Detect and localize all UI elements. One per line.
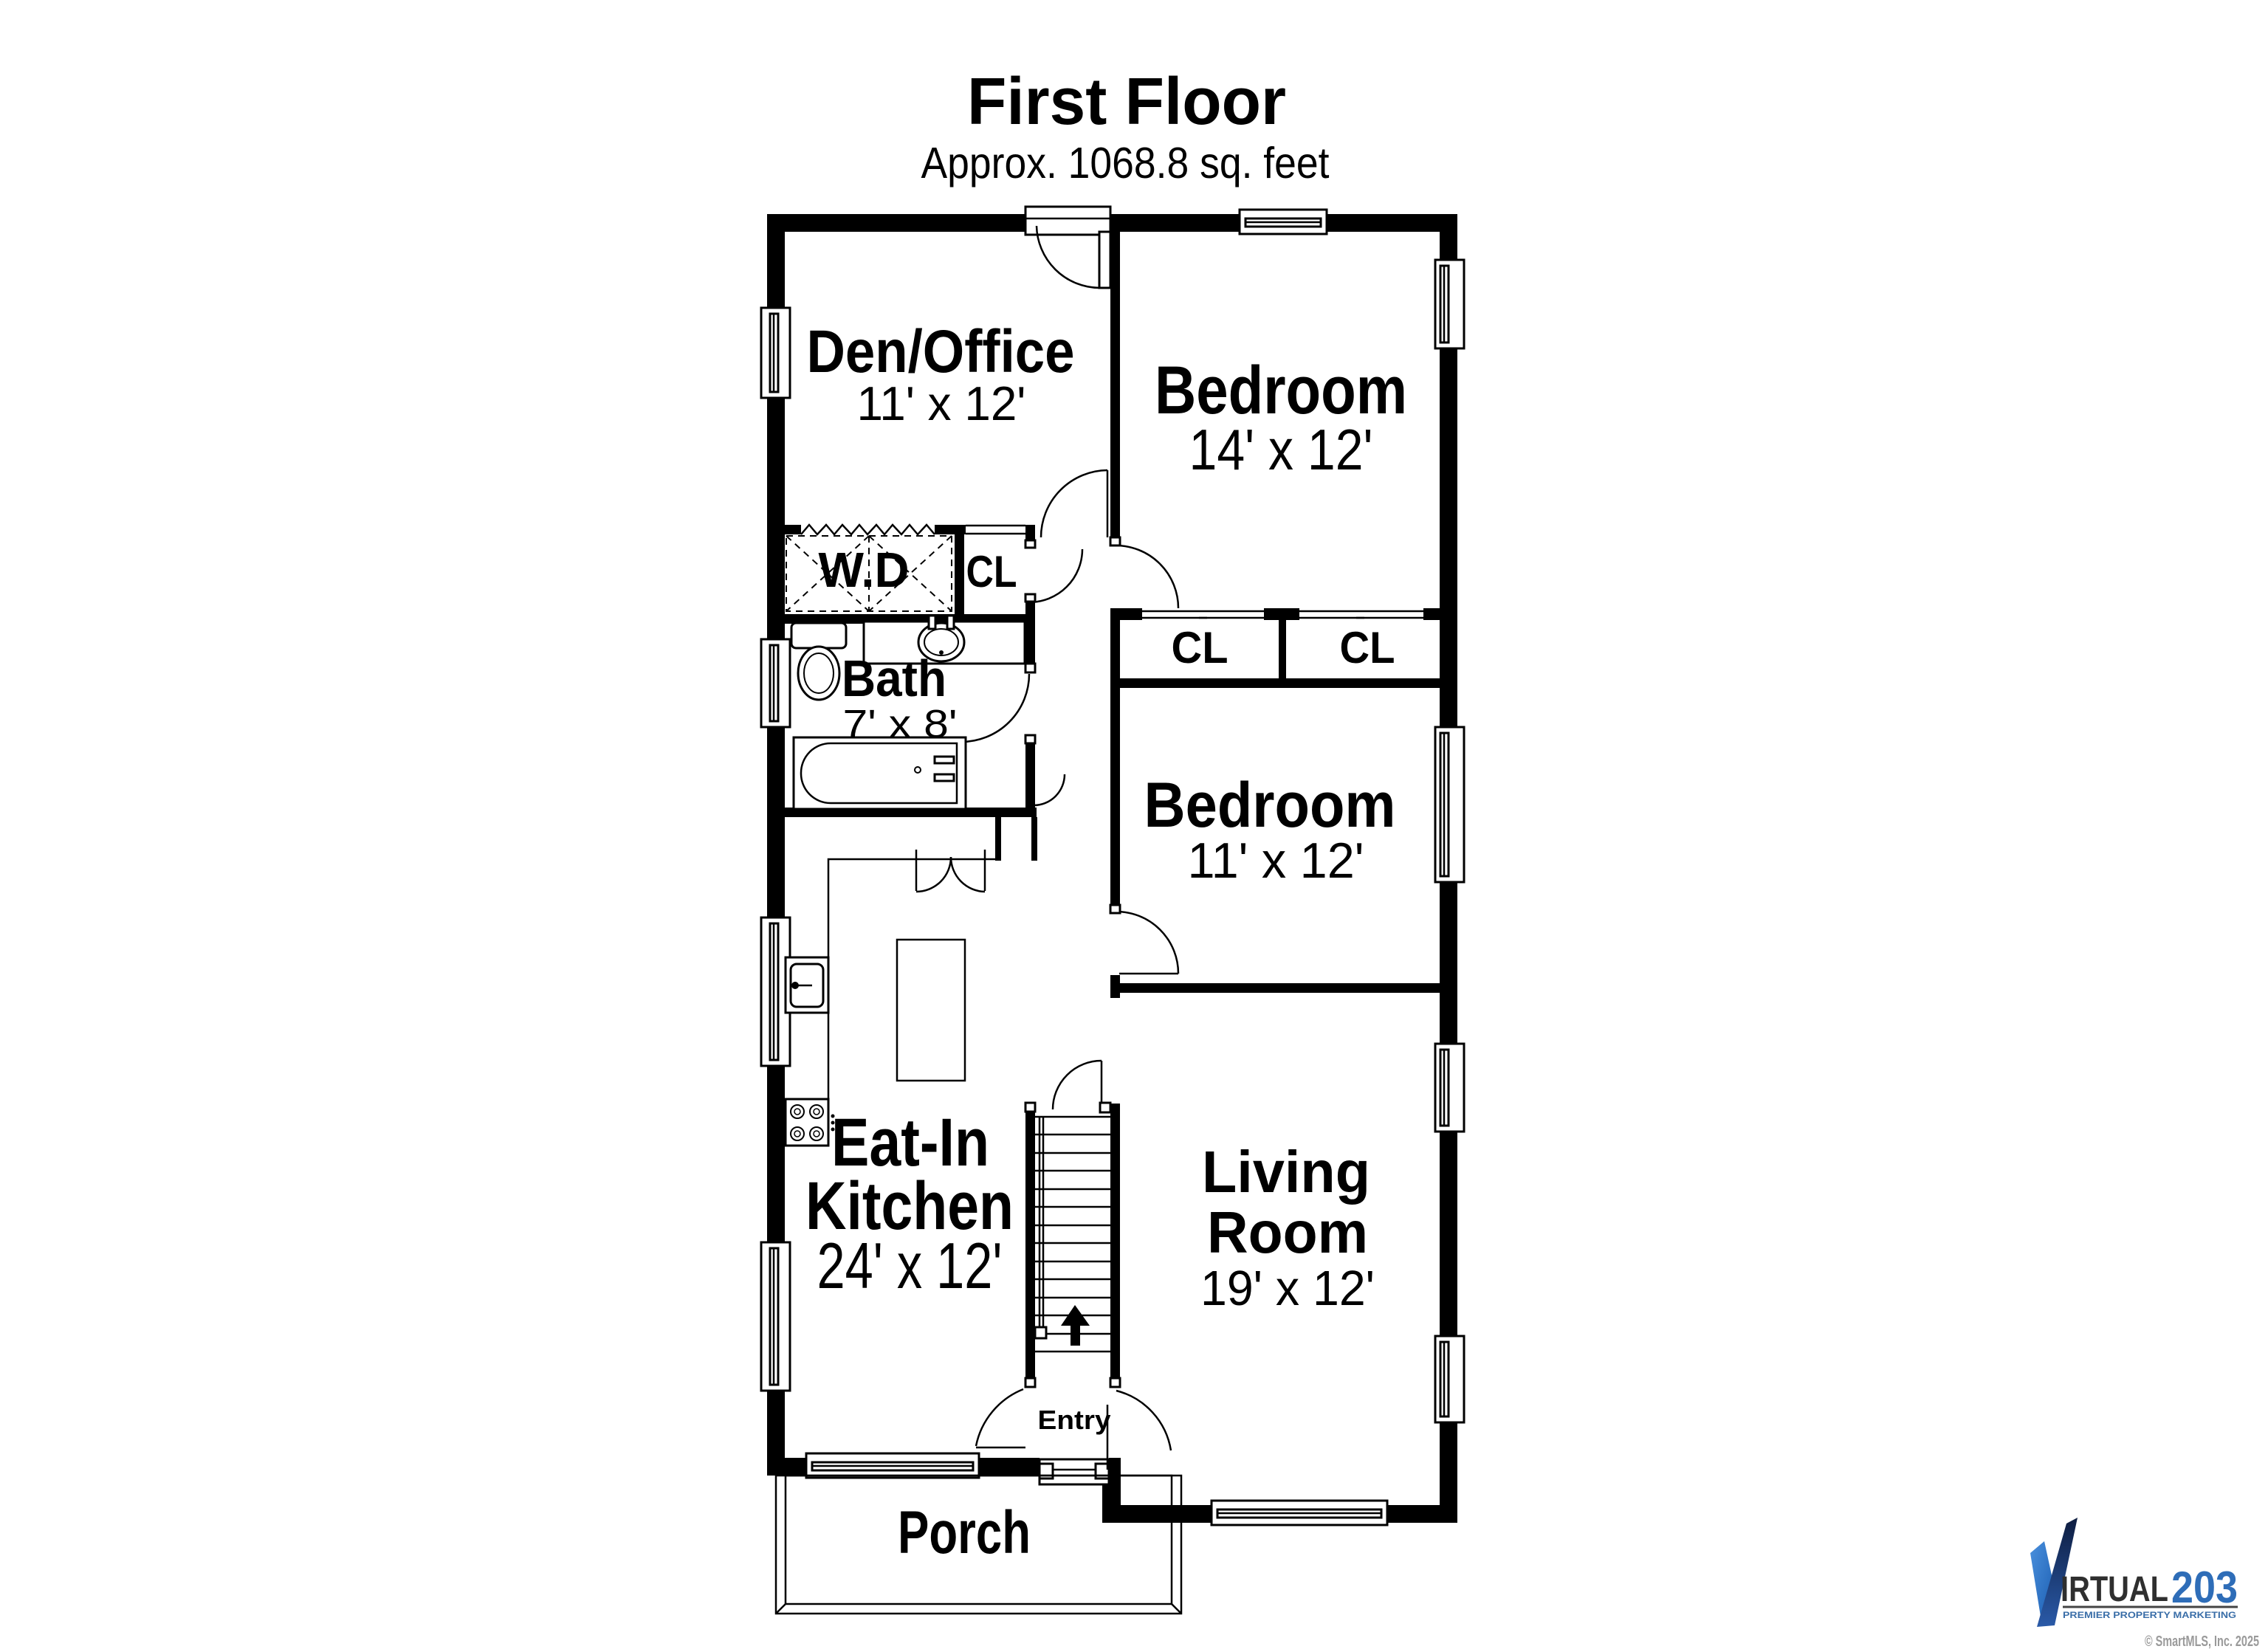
svg-text:First Floor: First Floor: [967, 65, 1286, 139]
svg-text:Den/Office: Den/Office: [807, 318, 1075, 385]
svg-text:11' x 12': 11' x 12': [1188, 833, 1364, 889]
svg-text:Bath: Bath: [842, 650, 946, 707]
svg-text:PREMIER PROPERTY MARKETING: PREMIER PROPERTY MARKETING: [2063, 1610, 2236, 1620]
svg-text:11' x 12': 11' x 12': [857, 376, 1026, 430]
svg-text:Living: Living: [1202, 1139, 1370, 1205]
svg-text:203: 203: [2171, 1563, 2238, 1612]
svg-text:24' x 12': 24' x 12': [817, 1229, 1003, 1302]
svg-text:Porch: Porch: [898, 1499, 1031, 1566]
svg-text:Approx. 1068.8 sq. feet: Approx. 1068.8 sq. feet: [921, 139, 1330, 187]
svg-text:W.D: W.D: [819, 543, 910, 598]
svg-text:Room: Room: [1207, 1199, 1368, 1265]
svg-text:CL: CL: [966, 547, 1017, 596]
svg-text:7' x 8': 7' x 8': [843, 702, 958, 746]
svg-text:CL: CL: [1172, 623, 1228, 672]
svg-text:© SmartMLS, Inc. 2025: © SmartMLS, Inc. 2025: [2145, 1633, 2259, 1649]
svg-text:CL: CL: [1340, 623, 1395, 672]
svg-text:Bedroom: Bedroom: [1144, 770, 1396, 841]
svg-text:Entry: Entry: [1038, 1405, 1111, 1435]
svg-text:IRTUAL: IRTUAL: [2061, 1570, 2168, 1609]
svg-text:19' x 12': 19' x 12': [1200, 1261, 1375, 1316]
svg-text:14' x 12': 14' x 12': [1189, 417, 1373, 482]
